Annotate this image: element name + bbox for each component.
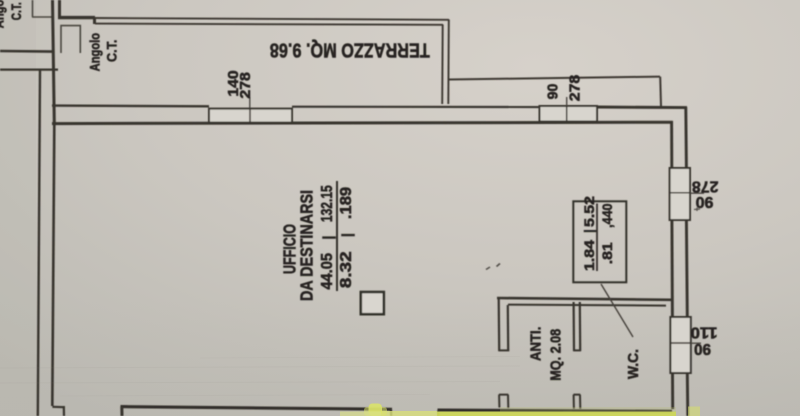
svg-text:90: 90 <box>694 340 711 357</box>
svg-text:TERRAZZO MQ. 9.68: TERRAZZO MQ. 9.68 <box>270 38 430 61</box>
svg-text:,440: ,440 <box>599 203 615 228</box>
svg-text:W.C.: W.C. <box>625 349 642 379</box>
svg-text:90: 90 <box>695 193 713 210</box>
svg-text:1.84: 1.84 <box>581 240 597 271</box>
svg-text:.81: .81 <box>599 242 615 264</box>
svg-text:110: 110 <box>691 324 718 341</box>
svg-text:|: | <box>339 233 355 237</box>
svg-text:C.T.: C.T. <box>9 2 24 20</box>
svg-text:5.52: 5.52 <box>581 196 597 227</box>
svg-text:MQ. 2.08: MQ. 2.08 <box>548 329 564 381</box>
svg-text:ANTI.: ANTI. <box>527 327 544 361</box>
svg-text:8.32: 8.32 <box>338 251 355 288</box>
svg-text:DA DESTINARSI: DA DESTINARSI <box>297 190 317 301</box>
svg-text:90: 90 <box>546 84 562 100</box>
svg-text:Angolo: Angolo <box>0 0 6 28</box>
svg-text:|: | <box>581 229 596 233</box>
svg-text:|: | <box>320 236 336 240</box>
svg-text:44.05: 44.05 <box>319 253 336 290</box>
svg-text:278: 278 <box>692 177 719 194</box>
svg-text:Angolo: Angolo <box>87 33 102 72</box>
svg-text:.189: .189 <box>338 186 355 219</box>
svg-text:132.15: 132.15 <box>319 185 336 222</box>
svg-text:C.T.: C.T. <box>105 40 120 63</box>
svg-text:278: 278 <box>567 75 584 102</box>
svg-text:278: 278 <box>237 72 254 99</box>
